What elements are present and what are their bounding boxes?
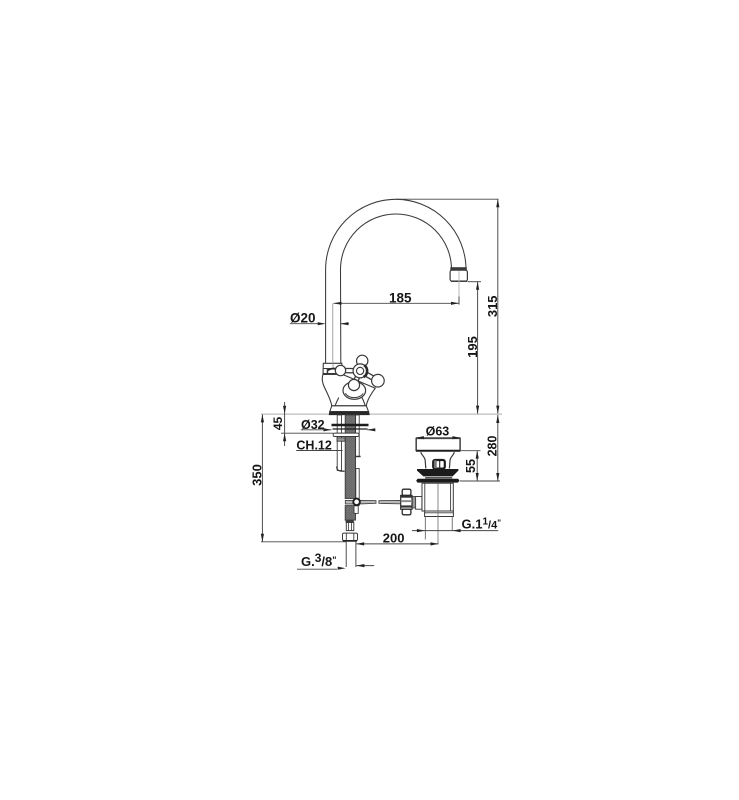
svg-text:Ø32: Ø32 xyxy=(301,418,325,432)
svg-text:315: 315 xyxy=(485,295,500,317)
svg-text:G.3/8": G.3/8" xyxy=(301,551,337,569)
svg-text:280: 280 xyxy=(485,436,499,457)
svg-text:45: 45 xyxy=(271,417,285,431)
svg-text:Ø63: Ø63 xyxy=(426,424,450,438)
svg-text:195: 195 xyxy=(465,336,480,358)
svg-text:Ø20: Ø20 xyxy=(290,310,316,325)
svg-text:185: 185 xyxy=(389,290,412,305)
svg-text:G.11/4": G.11/4" xyxy=(462,517,502,532)
svg-text:350: 350 xyxy=(250,464,265,486)
svg-text:200: 200 xyxy=(383,530,405,545)
svg-text:CH.12: CH.12 xyxy=(296,439,331,453)
svg-text:55: 55 xyxy=(464,459,478,473)
